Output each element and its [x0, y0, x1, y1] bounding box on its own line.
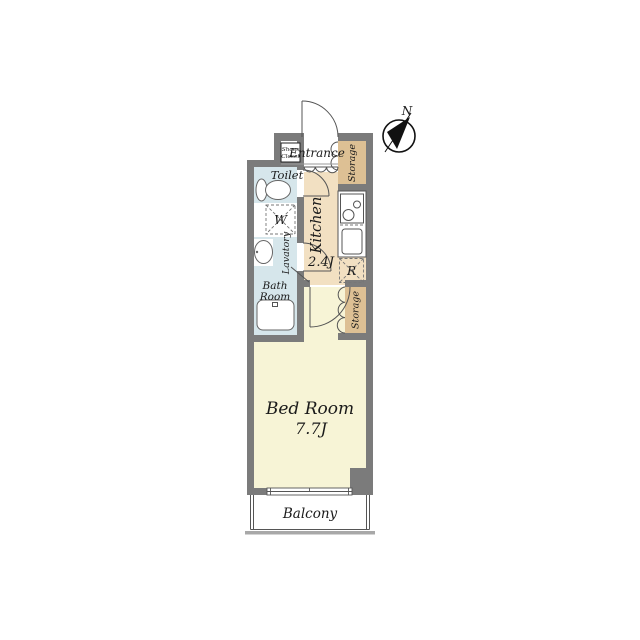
lavatory-sink — [255, 241, 273, 264]
bathtub — [257, 300, 294, 330]
pillar — [350, 468, 373, 495]
bedroom-window — [267, 488, 352, 495]
kitchen-size-label: 2.4J — [307, 255, 335, 270]
toilet-label: Toilet — [271, 168, 304, 182]
bedroom-label: Bed Room — [265, 399, 354, 419]
floor-plan-canvas: N Entrance Shoes Closet Storage Toilet W… — [0, 0, 640, 640]
entrance-door — [302, 101, 338, 137]
compass-north-label: N — [401, 104, 413, 118]
refrigerator-label: R — [346, 264, 356, 278]
storage-lower-label: Storage — [351, 291, 362, 329]
lavatory-label: Lavatory — [281, 231, 292, 275]
shoes-closet-label-2: Closet — [281, 154, 300, 160]
balcony-rail — [245, 531, 375, 535]
compass: N — [383, 104, 415, 152]
shoes-closet-label-1: Shoes — [282, 147, 300, 153]
washer-label: W — [274, 212, 288, 227]
floor-plan: N Entrance Shoes Closet Storage Toilet W… — [0, 0, 640, 640]
bedroom-size-label: 7.7J — [295, 419, 328, 438]
toilet-fixture — [256, 179, 291, 201]
storage-top-label: Storage — [347, 144, 358, 182]
bathroom-label-2: Room — [259, 291, 291, 303]
kitchen-label: Kitchen — [309, 197, 325, 255]
balcony-label: Balcony — [282, 506, 338, 522]
kitchen-counter — [338, 191, 366, 257]
